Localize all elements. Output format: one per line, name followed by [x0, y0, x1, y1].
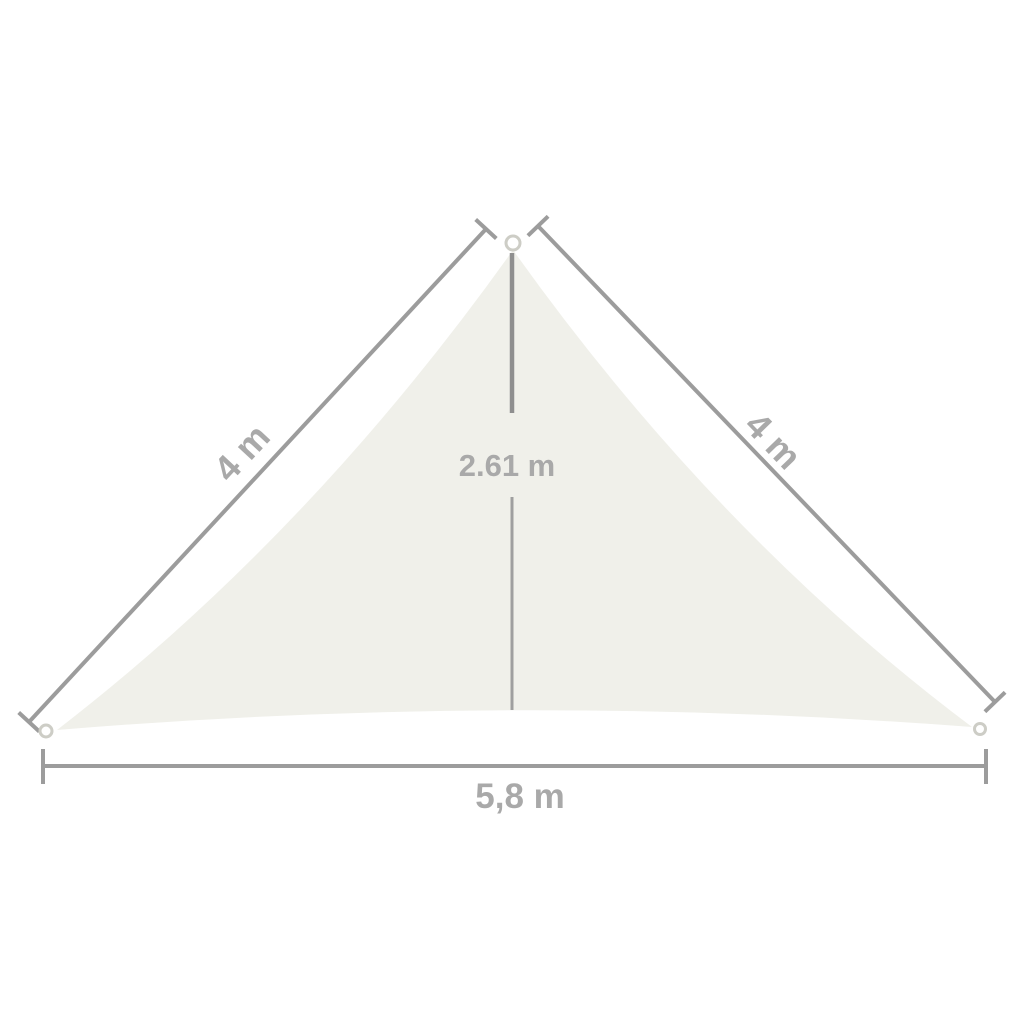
- left-side-dimension-label: 4 m: [205, 416, 277, 489]
- right-side-dimension-label: 4 m: [737, 404, 810, 477]
- apex-ring: [506, 236, 520, 250]
- shade-sail-shape: [57, 250, 972, 730]
- shade-sail-dimension-diagram: 4 m 4 m 2.61 m 5,8 m: [0, 0, 1024, 1024]
- product-diagram-canvas: 4 m 4 m 2.61 m 5,8 m: [0, 0, 1024, 1024]
- bottom-side-dimension-label: 5,8 m: [475, 777, 565, 816]
- height-dimension-label: 2.61 m: [459, 448, 556, 483]
- right-corner-ring: [975, 724, 986, 735]
- left-corner-ring: [40, 725, 52, 737]
